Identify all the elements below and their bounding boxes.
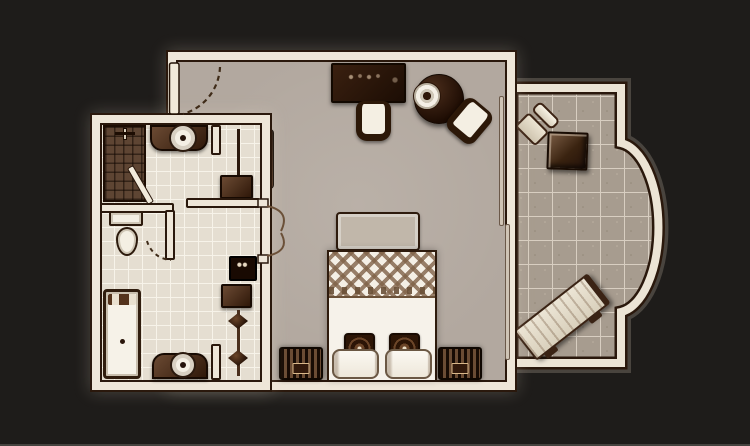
sink-top	[169, 124, 197, 152]
balcony-side-table	[546, 131, 588, 170]
toilet-tank	[109, 211, 143, 226]
pillow-left	[332, 349, 379, 379]
foot-bench	[336, 212, 420, 251]
double-bed	[327, 250, 437, 380]
bathtub-faucet-deck	[108, 294, 136, 305]
closet-partition	[211, 125, 221, 155]
nightstand-left	[279, 347, 323, 380]
bathtub-drain	[120, 339, 125, 344]
sliding-door-panel-lower	[505, 224, 510, 360]
bathroom-inner-wall	[186, 198, 260, 208]
tv-unit	[229, 256, 257, 281]
bathtub	[103, 289, 141, 379]
shower-arm	[115, 132, 135, 135]
closet-shelf	[220, 175, 253, 199]
closet-rod	[237, 129, 240, 181]
sun-lounger	[513, 273, 610, 361]
sink-bottom	[170, 352, 196, 378]
cabinet	[221, 284, 252, 308]
toilet-wall-vertical	[165, 210, 175, 260]
table-tray	[413, 82, 441, 110]
pillow-right	[385, 349, 432, 379]
vanity-partition	[211, 344, 221, 380]
nightstand-right	[438, 347, 482, 380]
desk-chair	[356, 101, 391, 141]
duvet	[329, 252, 435, 298]
sliding-door-panel-upper	[499, 96, 504, 226]
floor-plan-canvas	[0, 0, 750, 446]
desk	[331, 63, 406, 103]
